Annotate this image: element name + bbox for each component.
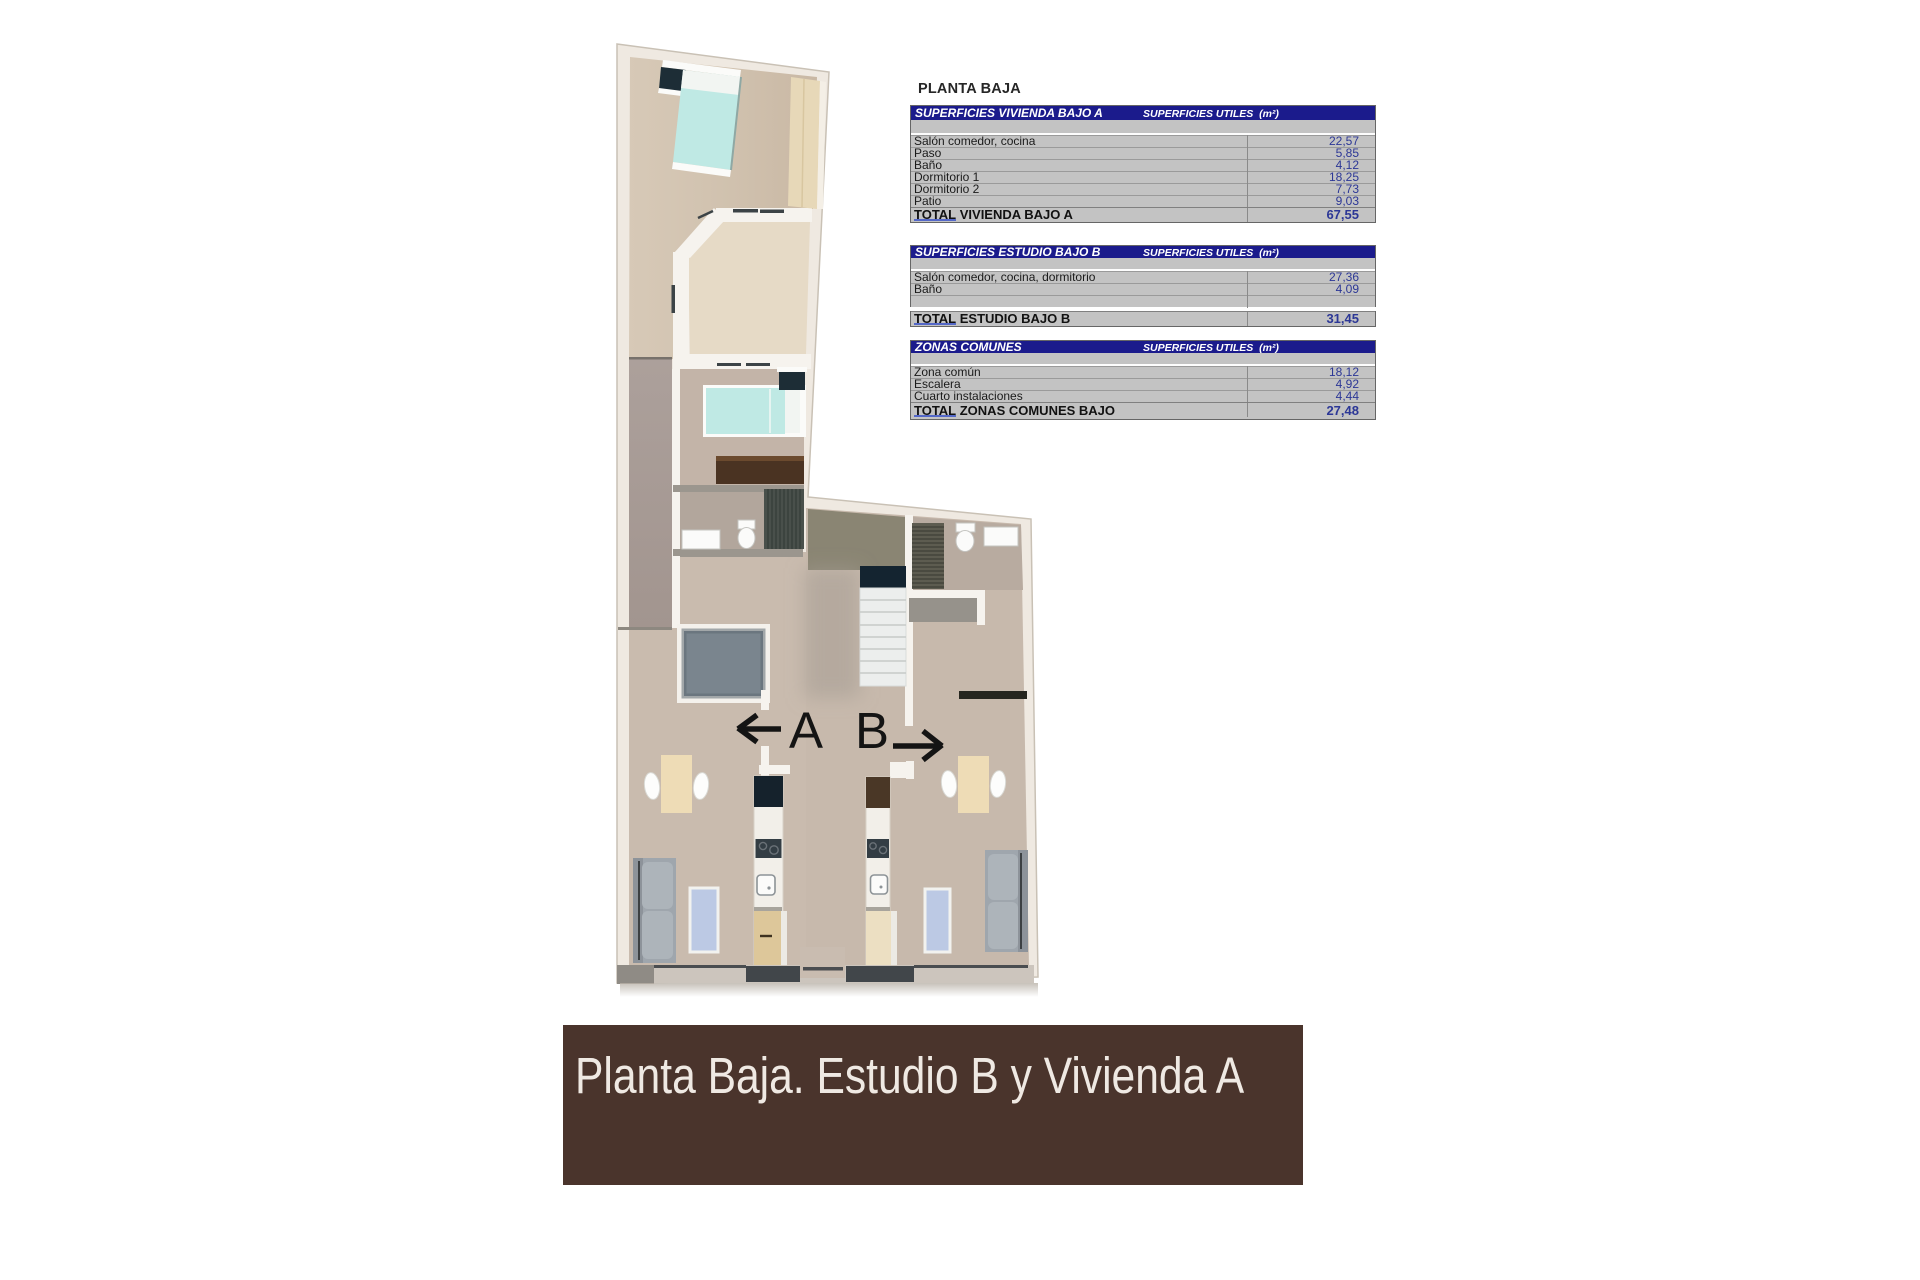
svg-text:A: A [789, 702, 823, 759]
svg-text:B: B [855, 702, 889, 759]
